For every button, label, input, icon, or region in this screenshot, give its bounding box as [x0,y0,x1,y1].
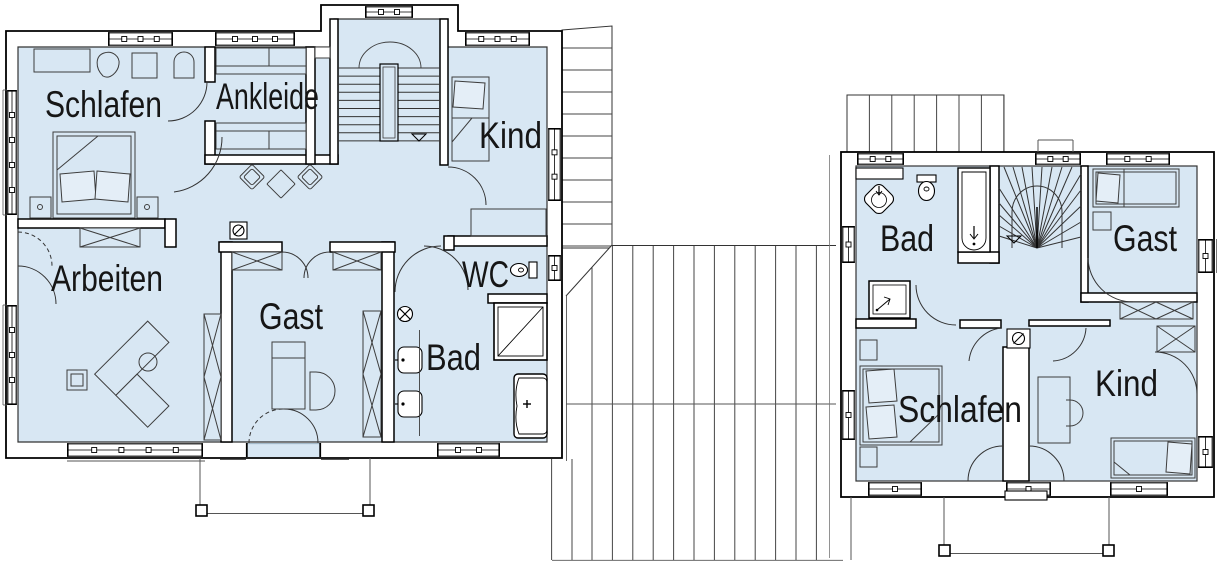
svg-text:Ankleide: Ankleide [216,76,319,117]
svg-text:Gast: Gast [1113,218,1178,259]
svg-text:Kind: Kind [479,115,542,156]
svg-text:Gast: Gast [259,296,324,337]
svg-text:Schlafen: Schlafen [898,389,1022,430]
svg-text:Bad: Bad [880,218,934,259]
svg-text:Bad: Bad [426,337,481,378]
svg-text:Kind: Kind [1095,363,1158,404]
svg-text:WC: WC [462,254,509,295]
svg-text:Arbeiten: Arbeiten [51,258,163,299]
svg-text:Schlafen: Schlafen [45,84,162,125]
